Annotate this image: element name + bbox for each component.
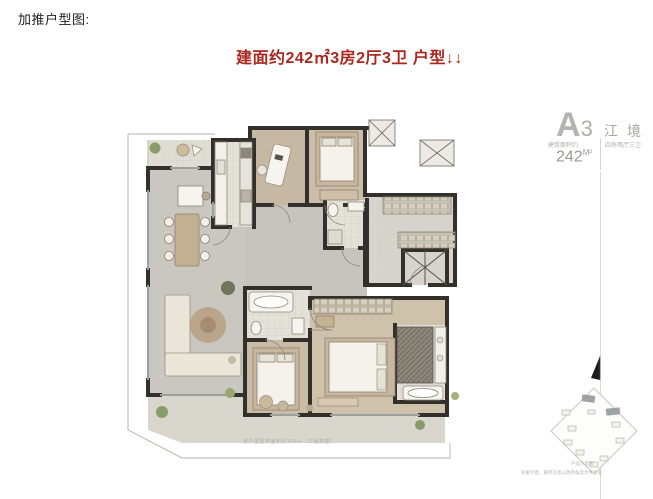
siteplan-note2: 效果示意，最终信息以政府备案文件为准 [521,470,602,476]
unit-code: A3 [556,108,593,142]
area-value: 242M² [556,148,592,166]
area-unit: M² [583,148,592,157]
north-arrow-icon [591,356,600,380]
page-title: 加推户型图: [18,9,90,28]
panel-divider [600,138,601,170]
unit-code-number: 3 [581,116,593,141]
area-number: 242 [556,148,583,165]
ac-platforms [369,120,454,166]
siteplan-graphic [540,350,653,499]
unit-name: 江境 [604,121,650,141]
floorplan-caption: 该户型建筑面积约146㎡（工程数据） [243,438,335,445]
floorplan-image [120,90,490,460]
article-screenshot: 加推户型图: 建面约242㎡3房2厅3卫 户型↓↓ [0,0,653,499]
unit-code-letter: A [556,106,581,144]
siteplan-diamond [551,388,637,474]
floorplan-headline: 建面约242㎡3房2厅3卫 户型↓↓ [236,44,463,68]
master-bath-fixtures [397,327,459,400]
rooms-label: 四房两厅三卫 [605,140,641,149]
bedroom2-bed [316,132,358,200]
siteplan-note1: 产品示意图 [571,461,594,467]
